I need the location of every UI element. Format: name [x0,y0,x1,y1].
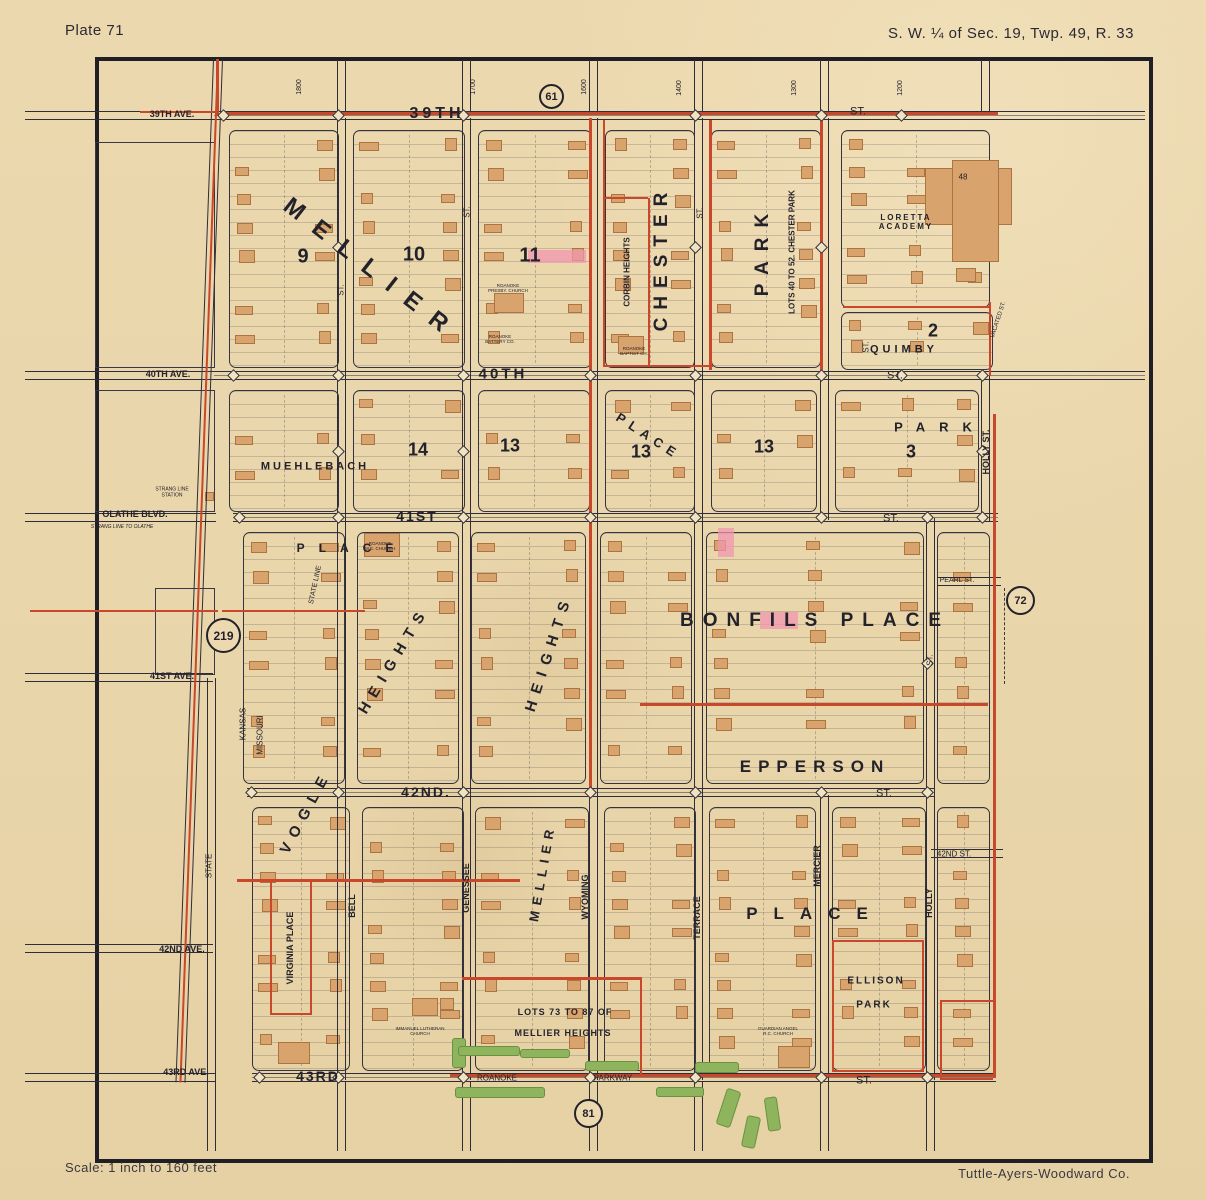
building [325,657,337,670]
block-number: 13 [500,436,520,457]
building [906,924,918,937]
building [955,898,969,909]
landmark-label: IMMANUEL LUTHERAN CHURCH [395,1026,444,1036]
building [904,1007,918,1018]
red-boundary-line [940,1078,993,1080]
building [715,819,735,828]
building [253,571,269,584]
red-boundary-line [603,120,605,366]
building [484,252,504,261]
street-stub [926,1082,935,1151]
building [249,631,267,640]
building [909,245,921,256]
building [486,433,498,444]
building [237,194,251,205]
subdivision-label: LOTS 73 TO 87 OF [518,1007,613,1017]
landmark-label: ROANOKE PRESBY. CHURCH [488,283,528,293]
building [673,139,687,150]
building [477,717,491,726]
map-canvas: 39THST.40THST.41STST.42ND.ST.43RDROANOKE… [0,0,1206,1200]
park-green-space [656,1087,704,1097]
building [672,900,690,909]
building [797,435,813,448]
building [610,843,624,852]
landmark-building [494,293,524,313]
red-boundary-line [222,610,365,612]
building [439,601,455,614]
landmark-building [778,1046,810,1068]
block-number: 9 [297,246,308,269]
building [488,168,504,181]
building [714,688,730,699]
street-label: STRANG LINE TO OLATHE [91,525,154,531]
building [671,402,691,411]
street-label: 40TH [479,365,528,382]
subdivision-label: PLACE [746,904,884,924]
building [613,222,627,233]
red-boundary-line [832,940,924,942]
building [565,819,585,828]
block-number: 3 [906,442,916,463]
building [717,304,731,313]
address-range: 1300 [791,80,799,96]
building [606,690,626,699]
building [973,322,989,335]
building [363,600,377,609]
building [955,657,967,668]
landmark-label: LORETTA ACADEMY [879,213,933,231]
red-boundary-line [832,1070,924,1072]
street-label: BELL [347,894,357,918]
building [902,818,920,827]
landmark-label: ROANOKE M.E. CHURCH [365,541,395,551]
building [610,982,628,991]
building [674,979,686,990]
circled-number-marker: 72 [1006,586,1035,615]
building [440,982,458,991]
street-label: ST. [856,1075,872,1088]
building [838,928,858,937]
building [317,140,333,151]
red-boundary-line [216,59,219,116]
address-range: 1200 [897,80,905,96]
building [566,718,582,731]
street-label: WYOMING [580,875,590,920]
red-boundary-line [462,977,642,980]
landmark-building [956,268,976,282]
building [610,1010,630,1019]
red-boundary-line [843,306,991,308]
building [799,249,813,260]
building [902,686,914,697]
west-parcel [95,142,215,368]
building [672,928,692,937]
subdivision-label: QUIMBY [870,344,938,357]
building [359,142,379,151]
block-number: 14 [408,440,428,461]
street-label: PEARL ST. [940,577,975,585]
building [443,222,457,233]
building [477,573,497,582]
street-label: 41ST [396,508,437,524]
street-label: 43RD [296,1068,340,1084]
building [317,303,329,314]
building [808,570,822,581]
building [902,846,922,855]
building [440,1010,460,1019]
street-stub [820,1082,829,1151]
building [570,221,582,232]
block-number: 10 [403,244,425,267]
building [717,170,737,179]
street-label: ST. [883,513,899,526]
building [904,542,920,555]
building [484,224,502,233]
red-boundary-line [640,977,642,1077]
building [370,981,386,992]
red-boundary-line [603,365,713,367]
building [840,817,856,828]
street-label: VIRGINIA PLACE [285,912,295,985]
building [363,748,381,757]
building [481,1035,495,1044]
landmark-building [412,998,438,1016]
subdivision-label: ELLISON [847,975,904,987]
building [957,399,971,410]
building [953,1038,973,1047]
building [904,716,916,729]
red-boundary-line [310,882,312,1015]
block-number: 13 [754,437,774,458]
building [717,141,735,150]
scale-note: Scale: 1 inch to 160 feet [65,1160,217,1175]
street-label: HOLLY [924,888,934,918]
building [479,746,493,757]
building [565,953,579,962]
building [904,897,916,908]
address-range: 1400 [676,80,684,96]
building [566,434,580,443]
park-green-space [695,1062,739,1073]
building [673,467,685,478]
building [485,979,497,992]
block-number: 48 [959,172,968,181]
building [441,470,459,479]
building [612,899,628,910]
building [806,541,820,550]
red-boundary-line [450,1074,995,1077]
building [955,926,971,937]
building [719,468,733,479]
building [370,953,384,964]
red-boundary-line [604,197,648,199]
building [614,926,630,939]
street-label: 42ND ST. [937,849,971,858]
building [957,815,969,828]
building [841,402,861,411]
building [957,954,973,967]
red-boundary-line [648,198,650,366]
park-green-space [455,1087,545,1098]
building [717,1008,733,1019]
street-vertical [207,678,216,1151]
block-number: 2 [928,321,938,342]
building [564,688,580,699]
street-label: ST. [876,788,892,801]
building [847,248,865,257]
building [249,661,269,670]
building [843,467,855,478]
building [673,331,685,342]
building [671,251,689,260]
building [445,278,461,291]
building [719,1036,735,1049]
building [953,746,967,755]
street-label: 40TH AVE. [146,369,191,379]
building [795,400,811,411]
building [372,1008,388,1021]
building [606,660,624,669]
circled-number-marker: 219 [206,618,241,653]
building [488,467,500,480]
street-stub [337,1082,346,1151]
street-label: ST. [925,654,934,666]
subdivision-label: PARK [894,421,986,436]
building [564,658,578,669]
building [676,1006,688,1019]
building [437,745,449,756]
building [953,871,967,880]
building [258,955,276,964]
building [437,541,451,552]
building [567,980,581,991]
building [568,170,588,179]
building [907,195,927,204]
park-green-space [741,1115,761,1149]
landmark-label: ROANOKE BAPTIST CH. [620,346,648,356]
building [717,870,729,881]
building [368,925,382,934]
building [842,844,858,857]
building [237,223,253,234]
building [849,139,863,150]
building [902,398,914,411]
street-label: MERCIER [812,845,822,887]
building [717,434,731,443]
street-label: 42ND. [401,784,451,800]
building [959,469,975,482]
subdivision-label: LOTS 40 TO 52. CHESTER PARK [787,190,796,314]
building [719,221,731,232]
building [796,954,812,967]
building [481,901,501,910]
building [321,717,335,726]
subdivision-label: PARK [856,999,892,1011]
building [610,601,626,614]
subdivision-label: CORBIN HEIGHTS [622,237,631,306]
building [442,899,458,910]
building [440,843,454,852]
subdivision-label: PARK [752,204,774,296]
building [435,660,453,669]
building [676,844,692,857]
building [672,686,684,699]
building [799,138,811,149]
building [953,1009,971,1018]
street-label: HOLLY ST. [981,429,991,474]
street-label: ST. [861,341,870,353]
street-stub [337,60,346,111]
landmark-label: STRANG LINE STATION [155,487,188,499]
building [359,399,373,408]
building [849,167,865,178]
building [716,569,728,582]
red-boundary-line [589,118,592,793]
building [235,436,253,445]
building [898,468,912,477]
street-label: MISSOURI [255,715,264,755]
highlighted-lot [718,528,734,557]
red-boundary-line [993,414,996,1078]
building [675,195,691,208]
building [483,952,495,963]
street-label: ST. [336,284,345,296]
building [566,569,578,582]
building [721,248,733,261]
address-range: 1800 [296,79,304,95]
street-label: 41ST AVE. [150,671,194,681]
street-stub [820,60,829,111]
building [570,332,584,343]
address-range: 1600 [581,79,589,95]
building [568,304,582,313]
building [260,843,274,854]
circled-number-marker: 61 [539,84,564,109]
building [477,543,495,552]
building [608,571,624,582]
building [611,470,629,479]
building [801,305,817,318]
building [437,571,453,582]
building [564,540,576,551]
building [486,140,502,151]
street-label: ST. [462,206,471,218]
building [608,745,620,756]
building [851,193,867,206]
landmark-label: ROANOKE BATTERY CO. [485,334,515,344]
building [908,321,922,330]
building [615,138,627,151]
street-vertical [462,118,471,1080]
street-label: ST. [850,106,866,119]
building [717,980,731,991]
street-label: KANSAS [238,708,247,740]
building [370,842,382,853]
red-boundary-line [940,1000,942,1080]
building [365,629,379,640]
subdivision-label: EPPERSON [740,757,890,777]
street-label: STATE [204,854,213,879]
building [670,657,682,668]
street-label: 39TH [409,105,464,123]
subdivision-label: BONFILS PLACE [680,610,950,632]
red-boundary-line [709,120,712,370]
park-green-space [764,1096,782,1131]
building [481,657,493,670]
building [444,926,460,939]
building [363,221,375,234]
address-range: 1700 [470,79,478,95]
red-boundary-line [270,1013,312,1015]
street-vertical [820,795,829,1082]
publisher: Tuttle-Ayers-Woodward Co. [958,1166,1130,1181]
building [260,1034,272,1045]
city-block [229,390,339,512]
building [251,542,267,553]
building [801,166,813,179]
block-number: 13 [631,442,651,463]
building [953,603,973,612]
red-boundary-line [832,940,834,1072]
building [907,168,925,177]
building [235,306,253,315]
street-stub [589,60,598,111]
street-label: ROANOKE [477,1073,517,1082]
building [361,193,373,204]
building [568,468,582,479]
landmark-label: GUARDIAN ANGEL R.C. CHURCH [758,1026,798,1036]
subdivision-label: CHESTER [651,185,673,332]
building [441,194,455,203]
building [792,1009,810,1018]
building [435,690,455,699]
city-block [937,807,990,1071]
building [668,572,686,581]
building [319,168,335,181]
building [668,746,682,755]
building [797,222,811,231]
red-boundary-line [640,703,988,706]
dashed-boundary [1004,588,1005,684]
landmark-building [278,1042,310,1064]
building [567,870,579,881]
building [715,953,729,962]
building [714,658,728,669]
red-boundary-line [922,940,924,1072]
building [673,168,689,179]
building [235,167,249,176]
subdivision-label: MELLIER HEIGHTS [514,1028,611,1038]
building [719,897,731,910]
street-label: 43RD AVE. [163,1067,209,1077]
block-number: 11 [519,245,540,268]
landmark-building [440,998,454,1010]
street-stub [694,60,703,111]
building [445,400,461,413]
park-green-space [585,1061,639,1071]
building [568,141,586,150]
subdivision-label: MUEHLEBACH [261,461,369,474]
building [258,816,272,825]
building [323,628,335,639]
plat-map-page: Plate 71 S. W. ¼ of Sec. 19, Twp. 49, R.… [0,0,1206,1200]
red-boundary-line [940,1000,993,1002]
building [716,718,732,731]
building [849,320,861,331]
building [479,628,491,639]
building [719,332,733,343]
building [235,335,255,344]
